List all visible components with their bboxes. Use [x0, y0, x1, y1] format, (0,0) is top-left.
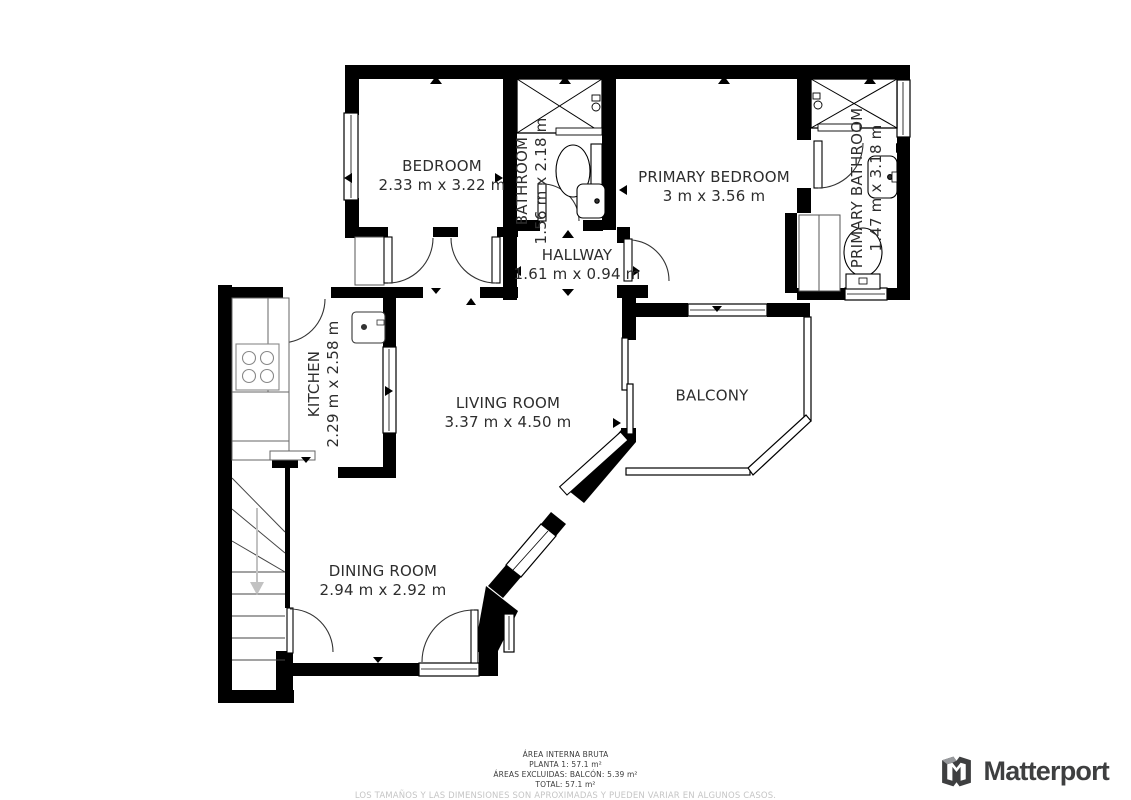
matterport-wordmark: Matterport [984, 756, 1110, 787]
room-name: PRIMARY BEDROOM [638, 168, 790, 187]
stove-icon [236, 344, 279, 390]
room-label-bathroom: BATHROOM 1.56 m x 2.18 m [513, 118, 551, 245]
room-name: PRIMARY BATHROOM [848, 108, 867, 269]
room-label-balcony: BALCONY [676, 387, 749, 406]
staircase-icon [232, 478, 285, 660]
stair-direction-arrow [250, 508, 264, 595]
room-label-dining-room: DINING ROOM 2.94 m x 2.92 m [320, 562, 447, 600]
sink-icon-bathroom [577, 184, 605, 218]
room-label-primary-bathroom: PRIMARY BATHROOM 1.47 m x 3.18 m [848, 108, 886, 269]
matterport-icon [938, 753, 975, 790]
room-name: BATHROOM [513, 118, 532, 245]
room-name: KITCHEN [305, 321, 324, 448]
room-dims: 2.33 m x 3.22 m [379, 176, 506, 195]
room-label-hallway: HALLWAY 1.61 m x 0.94 m [514, 246, 641, 284]
room-label-bedroom: BEDROOM 2.33 m x 3.22 m [379, 157, 506, 195]
matterport-logo: Matterport [938, 753, 1110, 790]
room-label-primary-bedroom: PRIMARY BEDROOM 3 m x 3.56 m [638, 168, 790, 206]
room-name: BALCONY [676, 387, 749, 406]
disclaimer-text: LOS TAMAÑOS Y LAS DIMENSIONES SON APROXI… [0, 791, 1131, 800]
room-label-kitchen: KITCHEN 2.29 m x 2.58 m [305, 321, 343, 448]
room-name: LIVING ROOM [445, 394, 572, 413]
room-name: HALLWAY [514, 246, 641, 265]
room-dims: 3 m x 3.56 m [638, 187, 790, 206]
room-dims: 3.37 m x 4.50 m [445, 413, 572, 432]
floorplan-page: BEDROOM 2.33 m x 3.22 m BATHROOM 1.56 m … [0, 0, 1131, 800]
room-label-living-room: LIVING ROOM 3.37 m x 4.50 m [445, 394, 572, 432]
room-name: BEDROOM [379, 157, 506, 176]
room-dims: 2.29 m x 2.58 m [324, 321, 343, 448]
room-dims: 2.94 m x 2.92 m [320, 581, 447, 600]
kitchen-sink-icon [352, 312, 385, 343]
room-dims: 1.47 m x 3.18 m [867, 108, 886, 269]
room-dims: 1.56 m x 2.18 m [532, 118, 551, 245]
room-dims: 1.61 m x 0.94 m [514, 265, 641, 284]
room-name: DINING ROOM [320, 562, 447, 581]
